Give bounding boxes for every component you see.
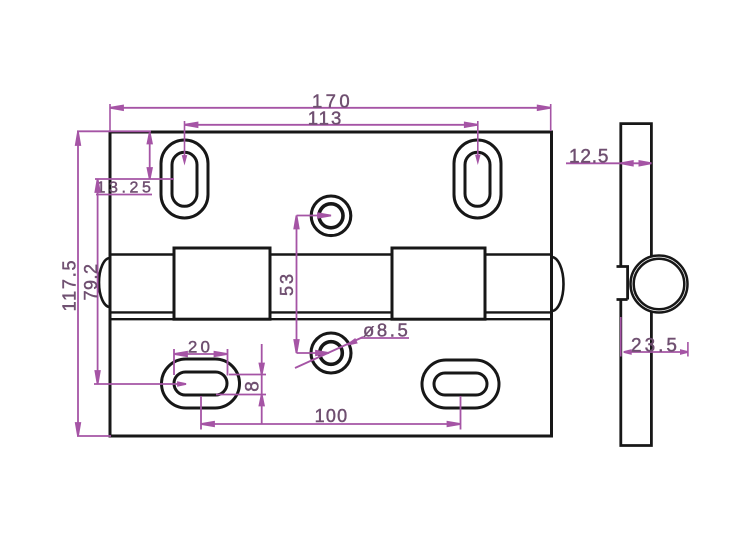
svg-text:20: 20 — [188, 337, 213, 356]
svg-text:113: 113 — [308, 108, 344, 129]
svg-text:23.5: 23.5 — [631, 336, 680, 357]
svg-text:13.25: 13.25 — [97, 179, 155, 196]
svg-text:79.2: 79.2 — [81, 263, 101, 300]
svg-text:8: 8 — [243, 381, 264, 392]
svg-text:12.5: 12.5 — [569, 146, 609, 167]
svg-text:ø8.5: ø8.5 — [363, 320, 410, 341]
svg-text:53: 53 — [277, 272, 297, 296]
svg-text:117.5: 117.5 — [60, 259, 80, 312]
svg-text:100: 100 — [315, 406, 349, 426]
